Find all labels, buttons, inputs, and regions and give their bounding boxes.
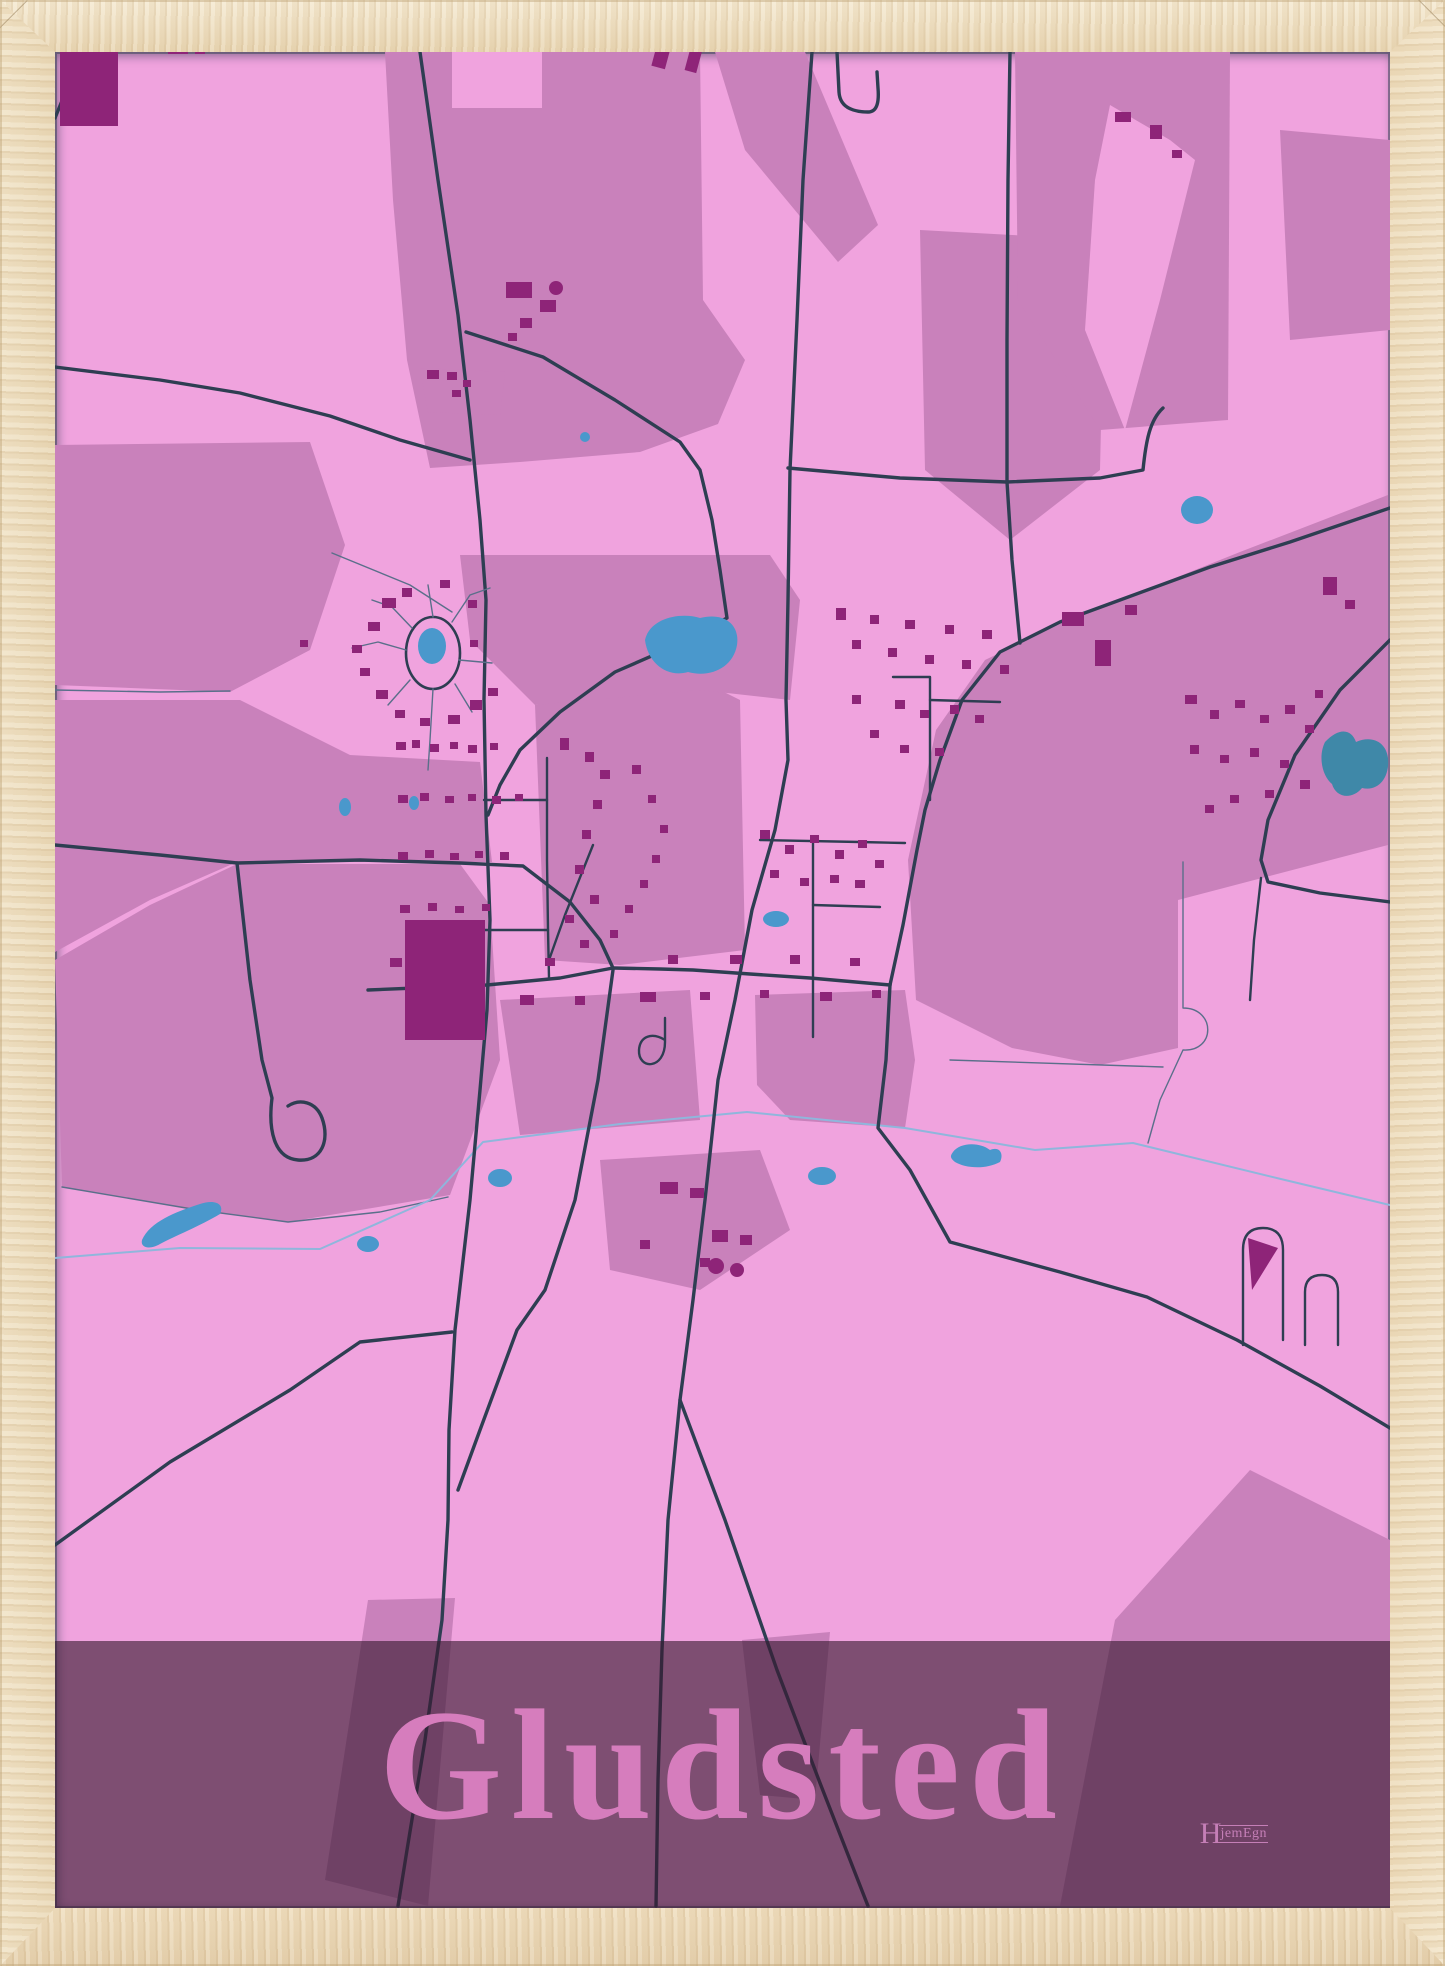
frame-bottom [0, 1908, 1445, 1966]
town-map [55, 52, 1390, 1908]
field-polygons [55, 52, 1390, 1906]
poster-title: Gludsted [379, 1687, 1066, 1863]
frame-top [0, 0, 1445, 52]
brand-logo: HjemEgn [1200, 1822, 1268, 1846]
big-pond [645, 616, 737, 674]
frame-left [0, 0, 55, 1966]
poster: Gludsted HjemEgn [55, 52, 1390, 1908]
framed-map-poster: Gludsted HjemEgn [0, 0, 1445, 1966]
frame-right [1390, 0, 1445, 1966]
brand-logo-initial: H [1200, 1822, 1222, 1846]
brand-logo-rest: jemEgn [1219, 1825, 1268, 1843]
title-band: Gludsted HjemEgn [55, 1641, 1390, 1908]
large-building-block [405, 920, 485, 1040]
ring-pond [418, 628, 446, 664]
field-east-large [908, 495, 1388, 1065]
